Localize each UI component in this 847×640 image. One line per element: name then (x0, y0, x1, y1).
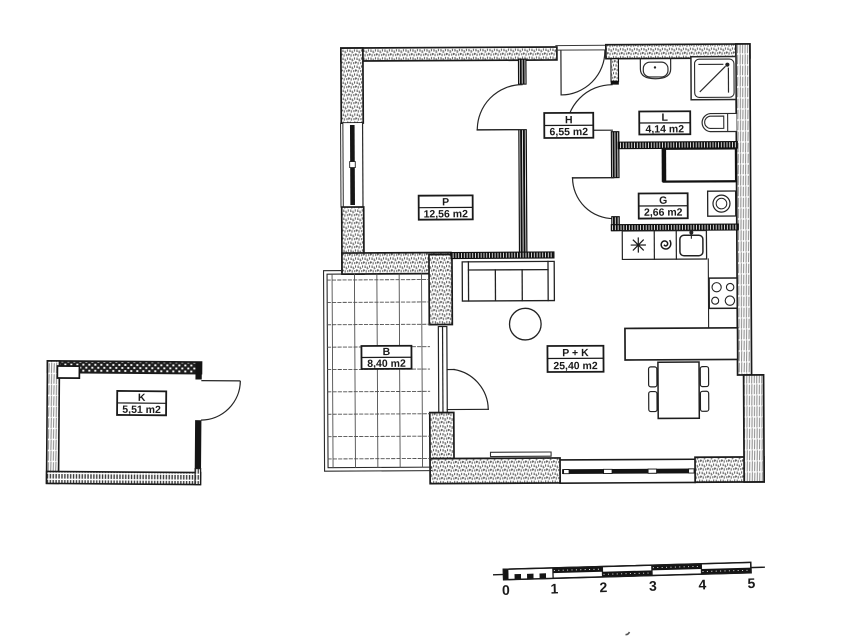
svg-text:H: H (565, 114, 573, 126)
svg-text:B: B (383, 346, 391, 358)
svg-text:2,66 m2: 2,66 m2 (644, 207, 683, 219)
svg-text:1: 1 (550, 580, 558, 596)
svg-text:L: L (661, 112, 668, 124)
svg-text:5,51 m2: 5,51 m2 (122, 404, 161, 416)
svg-text:5: 5 (747, 575, 755, 591)
svg-text:6,55 m2: 6,55 m2 (550, 126, 589, 138)
svg-text:25,40 m2: 25,40 m2 (553, 360, 598, 372)
svg-text:2: 2 (599, 579, 607, 595)
svg-text:4,14 m2: 4,14 m2 (646, 123, 685, 135)
svg-text:P: P (442, 196, 449, 208)
svg-text:K: K (138, 392, 146, 404)
svg-text:0: 0 (502, 582, 510, 598)
svg-text:4: 4 (698, 576, 706, 592)
svg-text:8,40 m2: 8,40 m2 (367, 358, 406, 370)
svg-text:12,56 m2: 12,56 m2 (424, 208, 469, 220)
svg-text:G: G (659, 195, 667, 207)
svg-text:P + K: P + K (562, 347, 589, 359)
svg-text:3: 3 (649, 578, 657, 594)
